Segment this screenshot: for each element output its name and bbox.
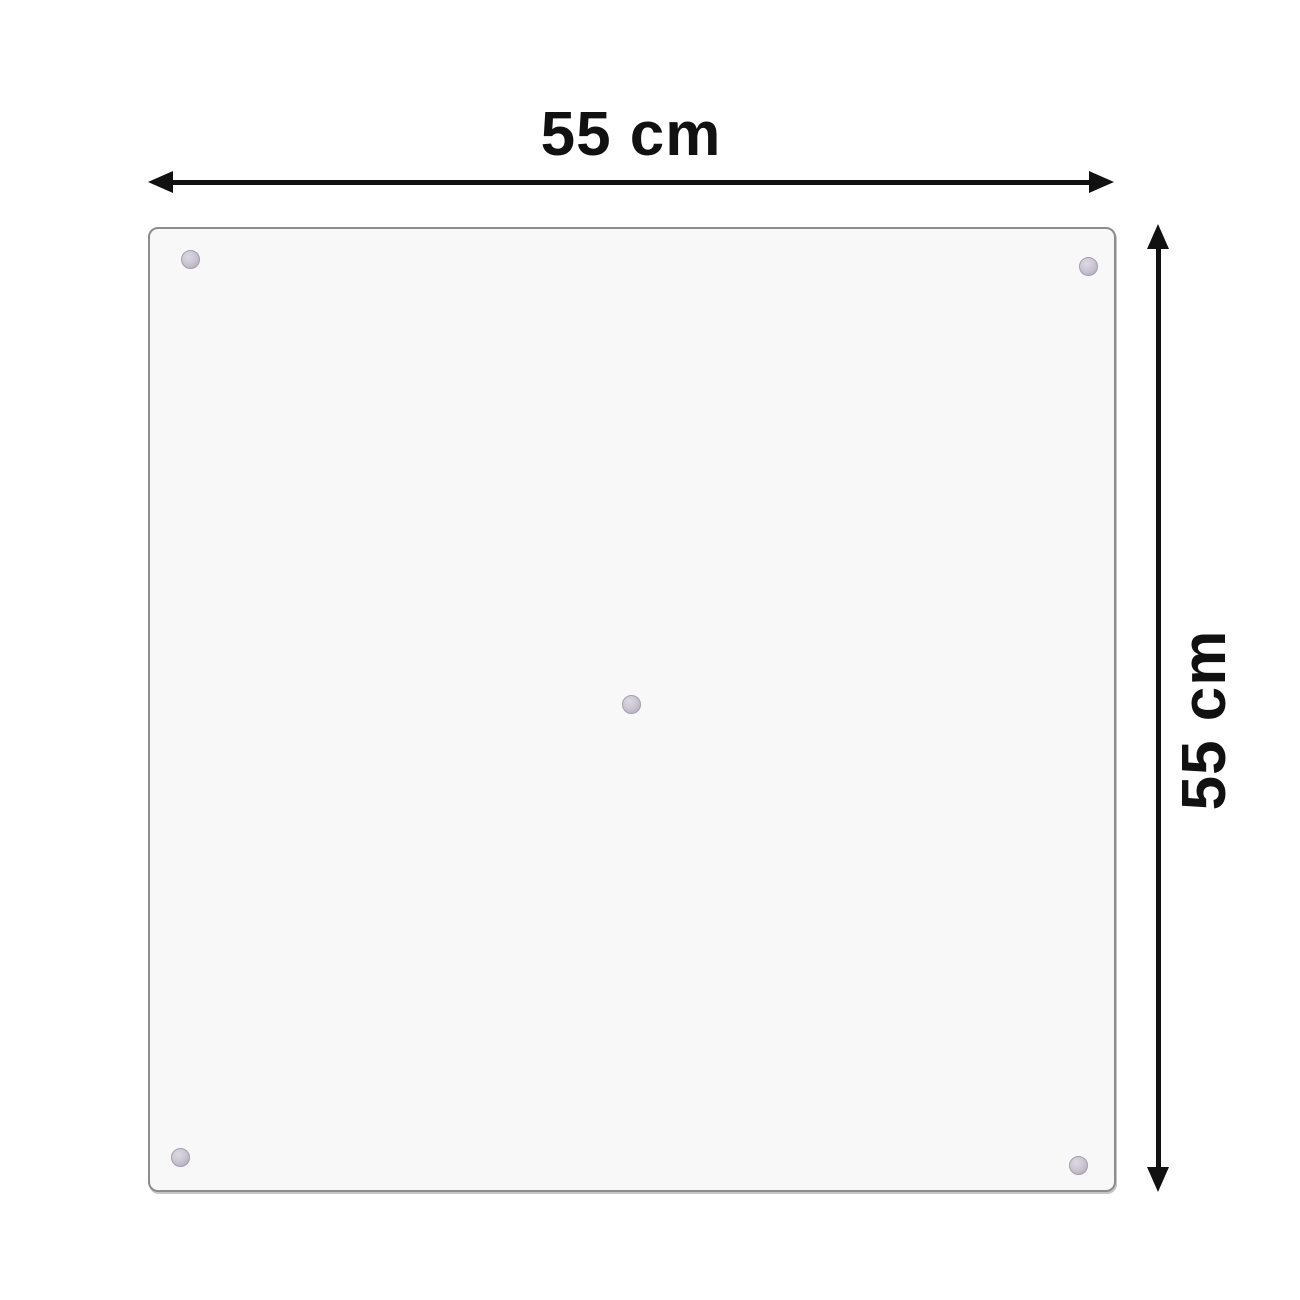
suction-cup-top-left [181, 250, 200, 269]
product-dimension-diagram: 55 cm 55 cm [0, 0, 1300, 1300]
arrowhead-down-icon [1147, 1167, 1169, 1192]
arrowhead-left-icon [148, 171, 173, 193]
suction-cup-top-right [1079, 257, 1098, 276]
suction-cup-center [622, 695, 641, 714]
arrowhead-right-icon [1089, 171, 1114, 193]
height-dimension-label: 55 cm [1170, 570, 1240, 870]
width-dimension-arrow [148, 171, 1114, 193]
suction-cup-bottom-right [1069, 1156, 1088, 1175]
suction-cup-bottom-left [171, 1148, 190, 1167]
width-dimension-label: 55 cm [148, 100, 1114, 170]
arrowhead-up-icon [1147, 224, 1169, 249]
width-arrow-line [173, 180, 1089, 185]
glass-panel [148, 227, 1116, 1192]
height-dimension-arrow [1146, 224, 1170, 1192]
height-arrow-line [1156, 249, 1161, 1167]
